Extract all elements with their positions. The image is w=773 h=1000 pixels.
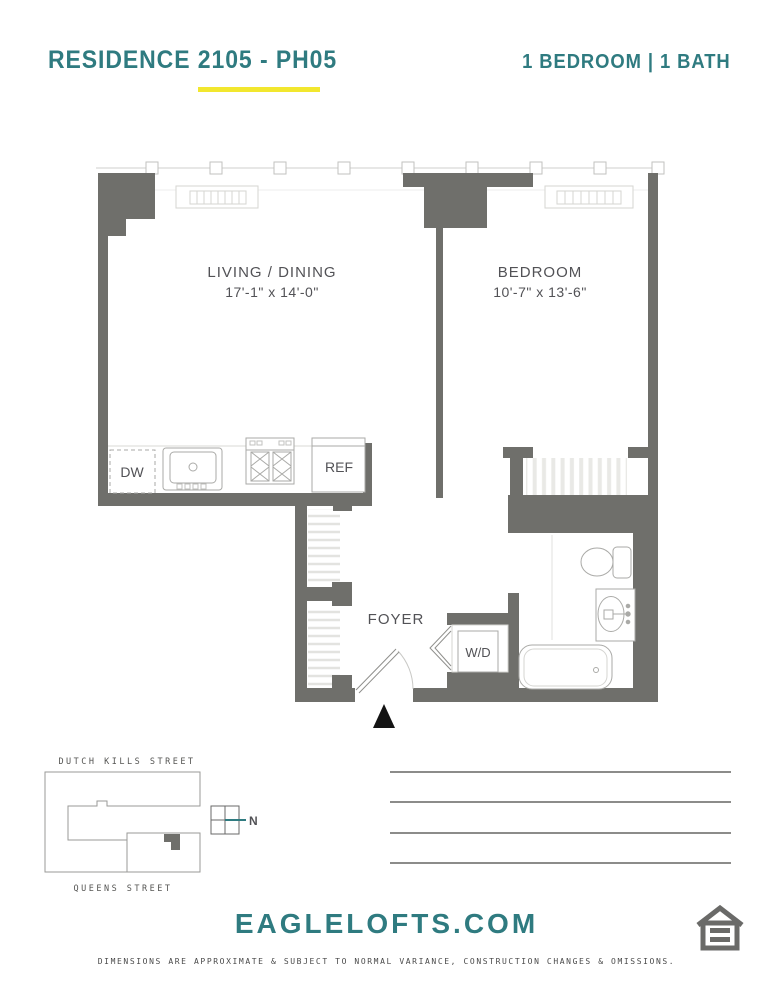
site-map: DUTCH KILLS STREET QUEENS STREET N: [45, 757, 258, 894]
unit-location-marker: [164, 834, 180, 850]
street-top-label: DUTCH KILLS STREET: [58, 757, 195, 767]
wall-bedroom-closet-right-stub: [628, 447, 648, 458]
wall-bath-left: [508, 593, 519, 690]
wall-wd-bottom: [447, 672, 511, 688]
mullion-icon: [146, 162, 158, 174]
compass: N: [211, 806, 258, 834]
foyer-closet-upper-shelves: [308, 509, 340, 585]
mullion-icon: [210, 162, 222, 174]
mullion-icon: [402, 162, 414, 174]
dw-label: DW: [120, 464, 144, 480]
bifold-door-icon: [430, 626, 451, 670]
entry-arrow-icon: [373, 704, 395, 728]
bathroom: [519, 535, 635, 689]
disclaimer-text: DIMENSIONS ARE APPROXIMATE & SUBJECT TO …: [0, 957, 773, 966]
ref-label: REF: [325, 459, 353, 475]
building-outline: [45, 772, 200, 872]
wall-wd-top: [447, 613, 511, 625]
mullion-icon: [466, 162, 478, 174]
mullion-icon: [530, 162, 542, 174]
wall-kitchen-bottom: [98, 493, 372, 506]
sink-drain-icon: [189, 463, 197, 471]
door-leaf: [356, 649, 399, 693]
building-wing: [127, 833, 200, 872]
bedroom-dims: 10'-7" x 13'-6": [493, 284, 587, 300]
living-dims: 17'-1" x 14'-0": [225, 284, 319, 300]
mullion-icon: [594, 162, 606, 174]
door-swing-arc: [398, 651, 413, 689]
wd-label: W/D: [465, 645, 490, 660]
entry-door: [356, 649, 413, 728]
bedroom-closet-hangers: [526, 458, 627, 495]
wall-closet-bath-mass: [508, 495, 658, 533]
toilet-bowl: [581, 548, 613, 576]
wall-closet-bottom-cap: [332, 675, 352, 691]
floorplan-drawing: LIVING / DINING 17'-1" x 14'-0" BEDROOM …: [0, 0, 773, 1000]
wall-bottom-right: [413, 688, 658, 702]
note-lines: [390, 772, 731, 863]
wall-left: [98, 173, 155, 493]
mullion-icon: [338, 162, 350, 174]
mullion-icon: [652, 162, 664, 174]
mullion-icon: [274, 162, 286, 174]
wall-bath-right: [633, 533, 658, 702]
living-label: LIVING / DINING: [207, 264, 336, 281]
floorplan-page: RESIDENCE 2105 - PH05 1 BEDROOM | 1 BATH: [0, 0, 773, 1000]
toilet-tank: [613, 547, 631, 578]
foyer-label: FOYER: [368, 611, 425, 628]
bedroom-label: BEDROOM: [498, 264, 583, 281]
foyer-closet-lower-shelves: [308, 607, 340, 686]
wall-closet-top-cap: [333, 497, 352, 511]
north-label: N: [249, 814, 258, 828]
website-link[interactable]: EAGLELOFTS.COM: [0, 908, 773, 940]
wall-foyer-closet-left: [295, 506, 307, 702]
street-bottom-label: QUEENS STREET: [73, 884, 172, 894]
baseboard-heaters: [176, 186, 633, 208]
faucet-handles: [626, 604, 630, 624]
wall-closet-divider-cap: [332, 582, 352, 606]
